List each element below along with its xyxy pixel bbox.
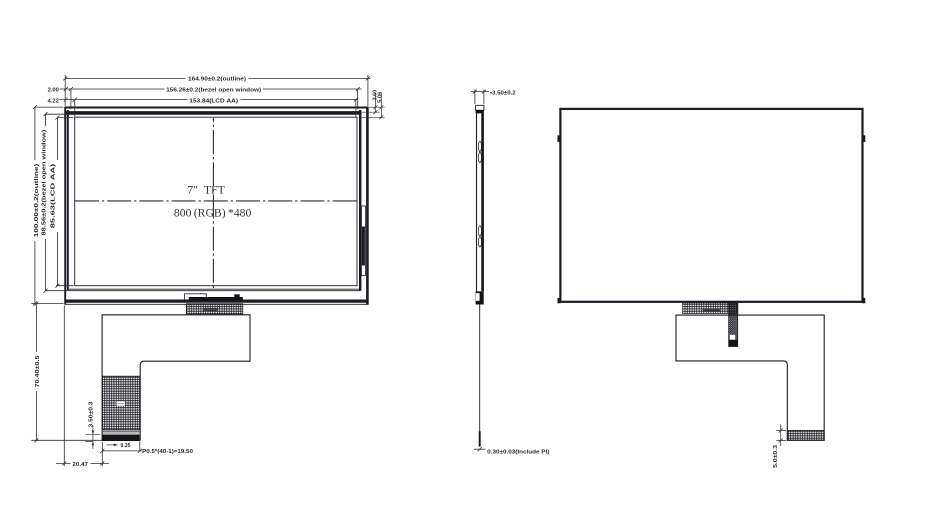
svg-text:70.40±0.5: 70.40±0.5 (35, 355, 41, 388)
svg-text:5.0±0.3: 5.0±0.3 (773, 444, 779, 468)
svg-text:P0.5*(40-1)=19.50: P0.5*(40-1)=19.50 (142, 449, 193, 455)
svg-text:7″ TFT: 7″ TFT (187, 183, 225, 197)
svg-text:100.00±0.2(outline): 100.00±0.2(outline) (34, 164, 40, 238)
svg-text:2.00: 2.00 (48, 88, 59, 94)
svg-text:3.50±0.3: 3.50±0.3 (89, 401, 95, 427)
svg-text:85.63(LCD AA): 85.63(LCD AA) (50, 164, 56, 229)
svg-text:▪3.50±0.2: ▪3.50±0.2 (490, 90, 517, 96)
svg-text:20.47: 20.47 (72, 462, 88, 468)
svg-text:164.90±0.2(outline): 164.90±0.2(outline) (188, 76, 246, 82)
svg-text:4.22: 4.22 (48, 98, 59, 104)
svg-text:0.35: 0.35 (121, 443, 131, 449)
svg-text:800 (RGB) *480: 800 (RGB) *480 (174, 208, 252, 220)
svg-text:156.26±0.2(bezel open window): 156.26±0.2(bezel open window) (166, 88, 261, 94)
svg-text:88.56±0.2(bezel open window): 88.56±0.2(bezel open window) (41, 130, 47, 236)
svg-text:0.30±0.03(Include PI): 0.30±0.03(Include PI) (487, 449, 549, 455)
svg-text:5.06: 5.06 (377, 91, 383, 103)
svg-text:153.84(LCD AA): 153.84(LCD AA) (189, 98, 238, 104)
